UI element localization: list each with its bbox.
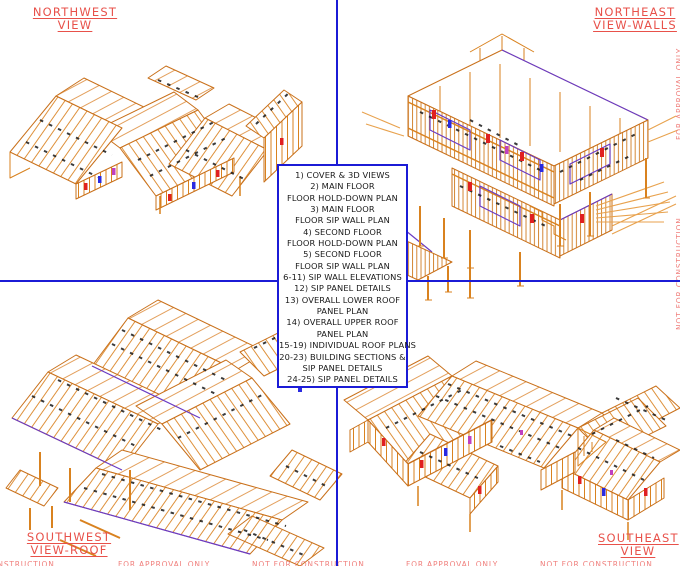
view-label-line: VIEW [30, 19, 120, 32]
index-line: 20-23) BUILDING SECTIONS & [279, 352, 406, 363]
northwest-view-drawing [10, 66, 302, 214]
index-line: 6-11) SIP WALL ELEVATIONS [279, 272, 406, 283]
index-line: FLOOR HOLD-DOWN PLAN [279, 238, 406, 249]
southeast-view-label: SOUTHEAST VIEW [598, 532, 678, 557]
quadrant-divider-vertical-top [336, 0, 338, 164]
watermark-right: NOT FOR CONSTRUCTION [675, 217, 680, 330]
view-label-line: VIEW-WALLS [592, 19, 678, 32]
watermark-bottom: NOT FOR CONSTRUCTION [0, 560, 55, 566]
index-line: 15-19) INDIVIDUAL ROOF PLANS [279, 340, 406, 351]
index-line: 13) OVERALL LOWER ROOF [279, 295, 406, 306]
quadrant-divider-vertical-bottom [336, 388, 338, 566]
watermark-bottom: FOR APPROVAL ONLY [406, 560, 498, 566]
index-line: PANEL PLAN [279, 306, 406, 317]
view-label-line: NORTHWEST [30, 6, 120, 19]
index-line: 4) SECOND FLOOR [279, 227, 406, 238]
quadrant-divider-horizontal-left [0, 280, 278, 282]
view-label-line: SOUTHEAST [598, 532, 678, 545]
northwest-view-label: NORTHWEST VIEW [30, 6, 120, 31]
index-line: 24-25) SIP PANEL DETAILS [279, 374, 406, 385]
watermark-right: FOR APPROVAL ONLY [675, 48, 680, 140]
southwest-view-label: SOUTHWEST VIEW-ROOF [24, 531, 114, 556]
northeast-view-label: NORTHEAST VIEW-WALLS [592, 6, 678, 31]
northeast-view-walls-drawing [362, 34, 678, 310]
watermark-bottom: NOT FOR CONSTRUCTION [540, 560, 653, 566]
index-line: FLOOR HOLD-DOWN PLAN [279, 193, 406, 204]
index-line: 3) MAIN FLOOR [279, 204, 406, 215]
view-label-line: NORTHEAST [592, 6, 678, 19]
index-line: 2) MAIN FLOOR [279, 181, 406, 192]
quadrant-divider-horizontal-right [407, 280, 680, 282]
index-line: SIP PANEL DETAILS [279, 363, 406, 374]
index-line: PANEL PLAN [279, 329, 406, 340]
view-label-line: SOUTHWEST [24, 531, 114, 544]
index-line: FLOOR SIP WALL PLAN [279, 261, 406, 272]
view-label-line: VIEW-ROOF [24, 544, 114, 557]
index-line: FLOOR SIP WALL PLAN [279, 215, 406, 226]
index-line: 14) OVERALL UPPER ROOF [279, 317, 406, 328]
watermark-bottom: NOT FOR CONSTRUCTION [252, 560, 365, 566]
cad-cover-sheet: 1) COVER & 3D VIEWS2) MAIN FLOORFLOOR HO… [0, 0, 680, 566]
index-line: 12) SIP PANEL DETAILS [279, 283, 406, 294]
view-label-line: VIEW [598, 545, 678, 558]
index-line: 1) COVER & 3D VIEWS [279, 170, 406, 181]
sheet-index-panel: 1) COVER & 3D VIEWS2) MAIN FLOORFLOOR HO… [277, 164, 408, 388]
index-line: 5) SECOND FLOOR [279, 249, 406, 260]
watermark-bottom: FOR APPROVAL ONLY [118, 560, 210, 566]
